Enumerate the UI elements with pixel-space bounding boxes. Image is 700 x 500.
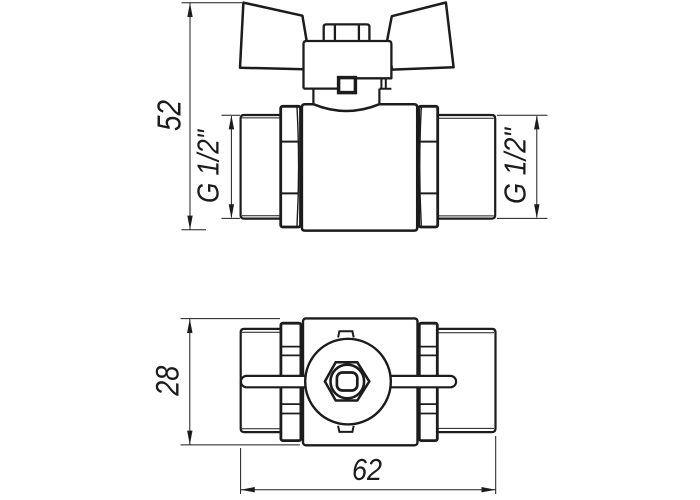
svg-text:G 1/2": G 1/2" (191, 128, 226, 203)
svg-text:62: 62 (352, 452, 382, 487)
svg-text:G 1/2": G 1/2" (498, 126, 533, 204)
svg-text:52: 52 (151, 100, 188, 131)
svg-text:28: 28 (150, 366, 186, 397)
